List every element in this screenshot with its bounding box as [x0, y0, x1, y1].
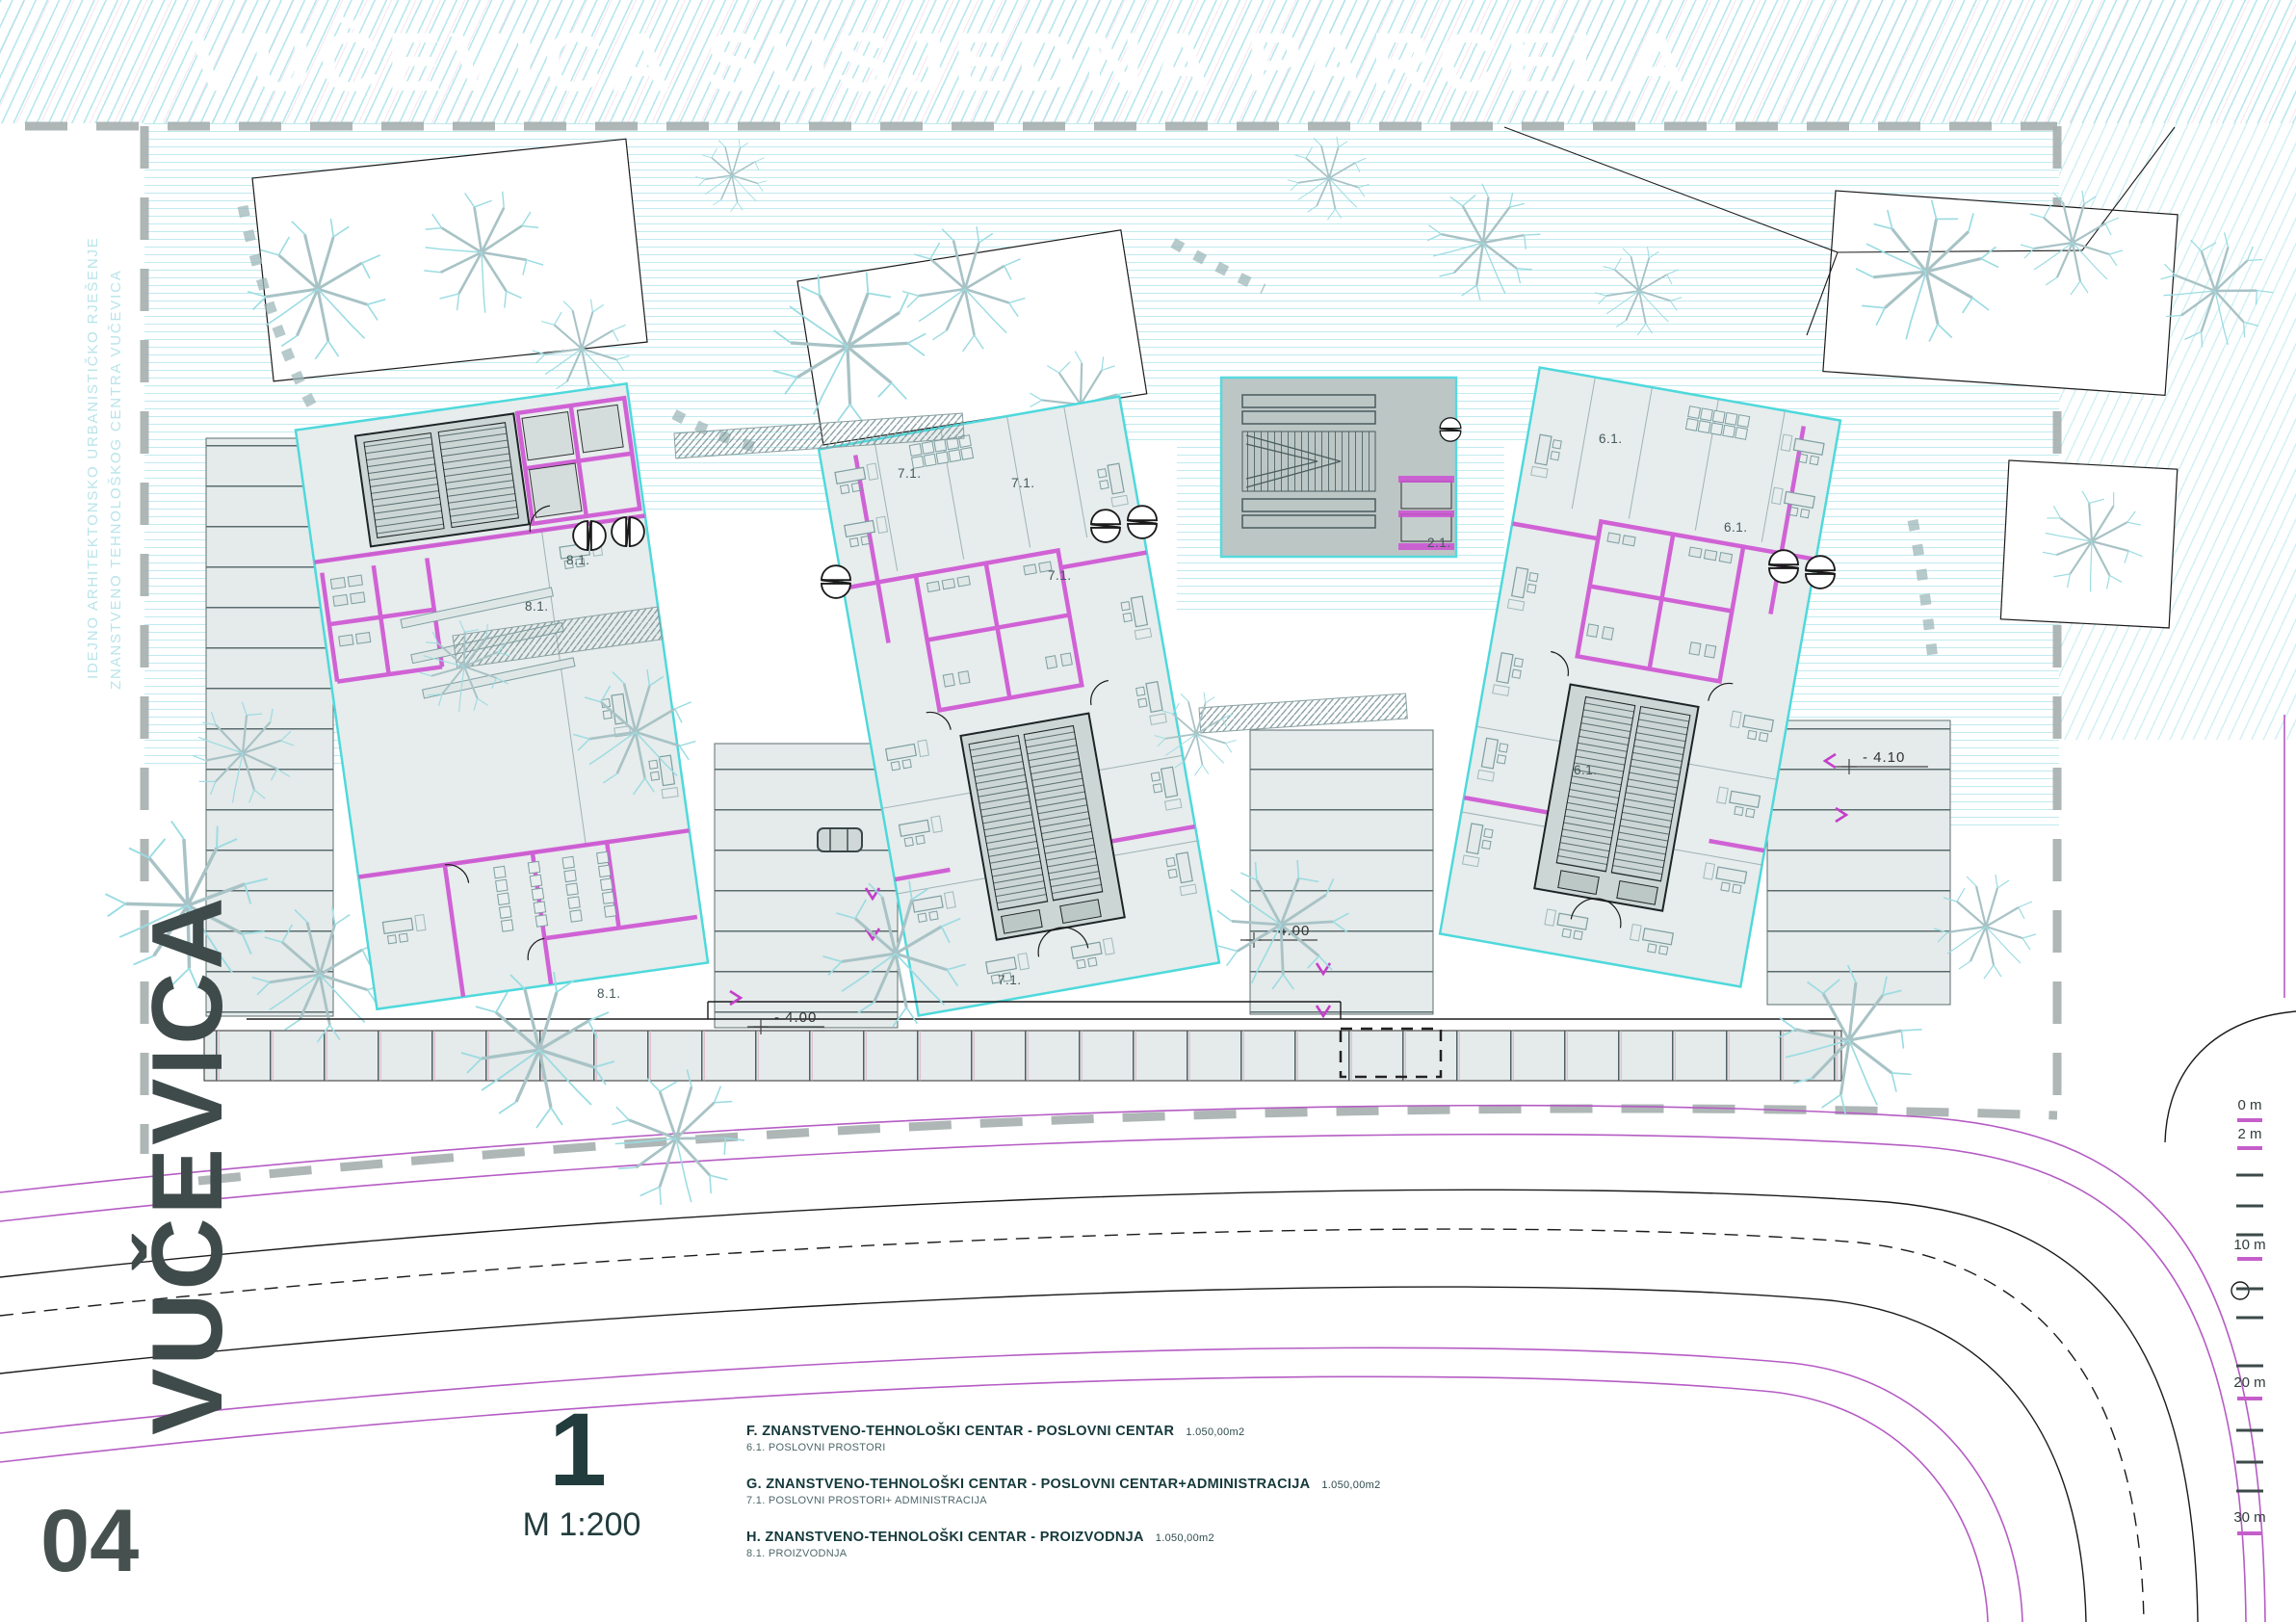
legend-entry-g: G. ZNANSTVENO-TEHNOLOŠKI CENTAR - POSLOV… — [746, 1477, 1381, 1506]
legend-entry-title: H. ZNANSTVENO-TEHNOLOŠKI CENTAR - PROIZV… — [746, 1530, 1144, 1545]
walkway-edges — [247, 1002, 1838, 1077]
unit-label-f: 6.1. — [1574, 763, 1598, 777]
figure-number: 1 — [520, 1389, 636, 1509]
scale-label: M 1:200 — [505, 1506, 659, 1544]
unit-label-h: 8.1. — [566, 553, 590, 567]
svg-text:10 m: 10 m — [2233, 1237, 2265, 1253]
unit-label-h: 8.1. — [525, 599, 549, 614]
svg-text:- 4.10: - 4.10 — [1863, 749, 1905, 766]
street-name-label: VUČEVICA — [131, 895, 246, 1435]
unit-label-g: 7.1. — [1048, 568, 1072, 583]
road-node-circle — [2231, 1282, 2249, 1299]
legend-entry-f: F. ZNANSTVENO-TEHNOLOŠKI CENTAR - POSLOV… — [746, 1424, 1381, 1453]
legend-entry-title: F. ZNANSTVENO-TEHNOLOŠKI CENTAR - POSLOV… — [746, 1424, 1174, 1439]
legend-entry-h: H. ZNANSTVENO-TEHNOLOŠKI CENTAR - PROIZV… — [746, 1530, 1381, 1559]
sheet-number: 04 — [40, 1491, 139, 1592]
legend-entry-subtitle: 6.1. POSLOVNI PROSTORI — [746, 1442, 1381, 1453]
unit-label-g: 7.1. — [898, 466, 922, 481]
unit-label-f: 6.1. — [1724, 520, 1748, 535]
elevation-marker--410: - 4.10 — [1836, 749, 1928, 774]
svg-text:- 4.00: - 4.00 — [774, 1009, 817, 1026]
legend-entry-subtitle: 7.1. POSLOVNI PROSTORI+ ADMINISTRACIJA — [746, 1495, 1381, 1506]
svg-text:0 m: 0 m — [2237, 1097, 2261, 1113]
unit-label-f: 6.1. — [1599, 432, 1623, 446]
svg-text:2 m: 2 m — [2237, 1126, 2261, 1142]
legend-entry-area: 1.050,00m2 — [1321, 1479, 1380, 1491]
loading-area-dashed — [1341, 1029, 1441, 1077]
site-linework-front: - 4.10 - 4.00 - 4.00 — [0, 0, 2296, 1622]
scale-bar: 0 m 2 m 10 m 20 m 30 m — [2233, 1097, 2265, 1533]
direction-arrows — [730, 754, 1846, 1016]
site-plan-sheet: VUČEVICA SUSJEDNA PARCELA — [0, 0, 2296, 1622]
legend-entry-subtitle: 8.1. PROIZVODNJA — [746, 1548, 1381, 1559]
unit-label-g: 7.1. — [998, 973, 1022, 987]
unit-label-g: 7.1. — [1011, 476, 1035, 490]
svg-text:20 m: 20 m — [2233, 1374, 2265, 1391]
stair-plaza — [1221, 378, 1461, 557]
stair-plaza-label: 2.1. — [1427, 536, 1451, 550]
entrance-door-symbols — [573, 506, 1835, 598]
svg-text:30 m: 30 m — [2233, 1509, 2265, 1526]
elevation-marker--400b: - 4.00 — [747, 1009, 824, 1034]
legend-entry-area: 1.050,00m2 — [1186, 1426, 1244, 1438]
unit-label-h: 8.1. — [597, 986, 621, 1001]
car-icon — [818, 828, 862, 851]
legend-entry-title: G. ZNANSTVENO-TEHNOLOŠKI CENTAR - POSLOV… — [746, 1477, 1310, 1492]
legend-entry-area: 1.050,00m2 — [1156, 1532, 1214, 1544]
